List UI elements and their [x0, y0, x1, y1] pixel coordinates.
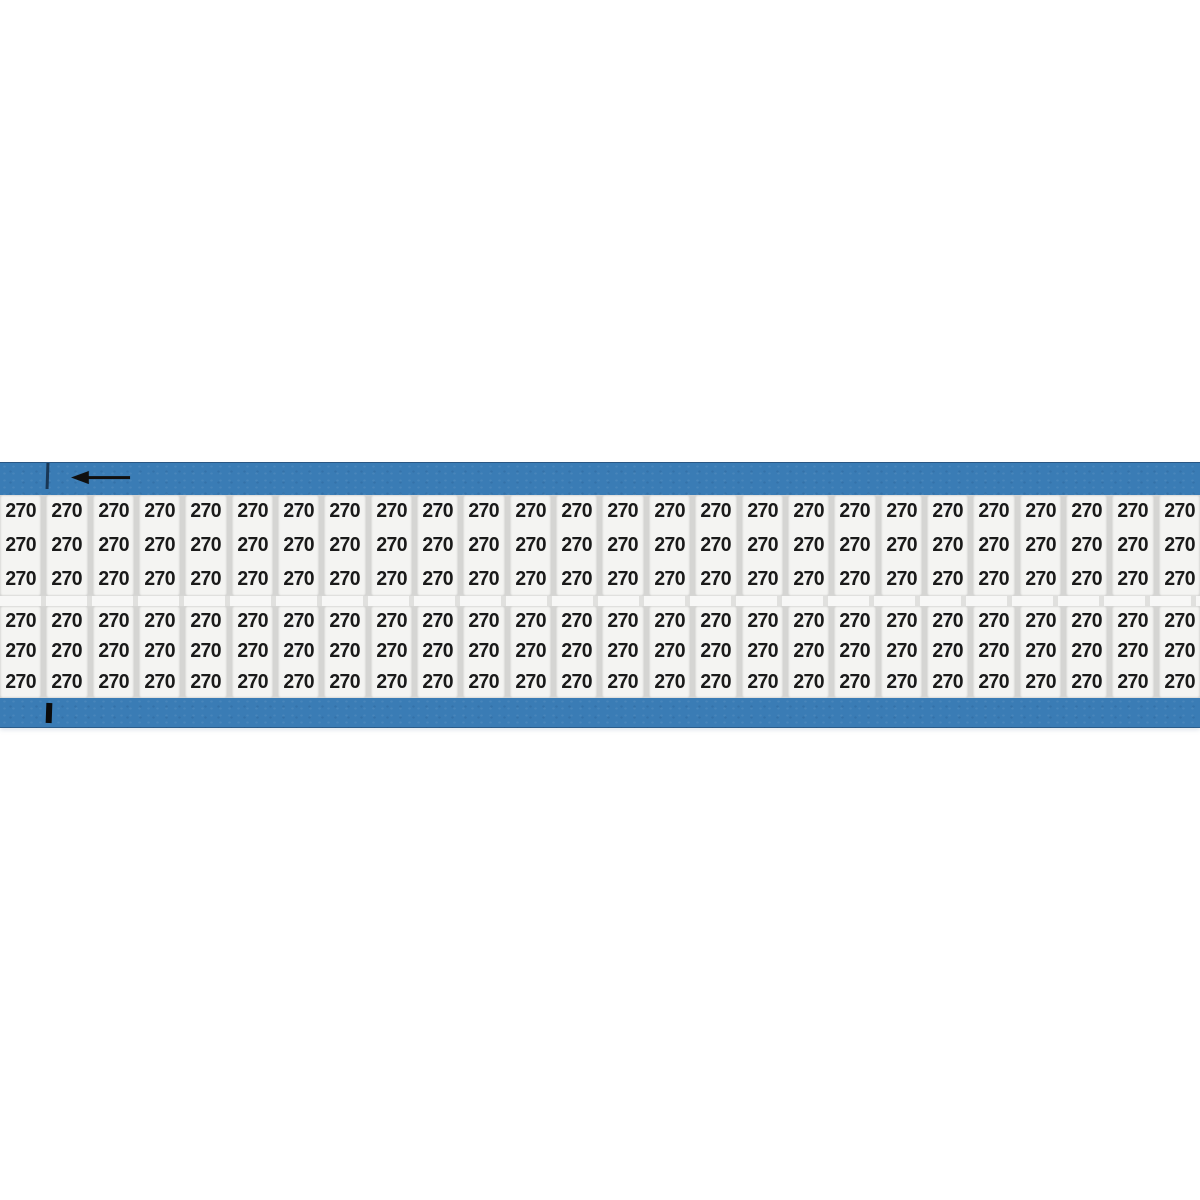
wire-marker-label: 270: [1067, 606, 1107, 637]
wire-marker-label: 270: [186, 495, 226, 529]
wire-marker-label: 270: [557, 606, 597, 637]
wire-marker-label: 270: [1, 606, 41, 637]
wire-marker-label: 270: [1113, 606, 1153, 637]
wire-marker-label: 270: [557, 562, 597, 596]
wire-marker-label: 270: [464, 637, 504, 668]
wire-marker-label: 270: [279, 667, 319, 698]
label-column: 270270270: [1020, 606, 1061, 698]
wire-marker-label: 270: [371, 529, 411, 563]
wire-marker-label: 270: [928, 495, 968, 529]
label-section: 2702702702702702702702702702702702702702…: [0, 495, 1200, 596]
product-image-canvas: 2702702702702702702702702702702702702702…: [0, 0, 1200, 1200]
wire-marker-label: 270: [464, 606, 504, 637]
wire-marker-label: 270: [418, 667, 458, 698]
wire-marker-label: 270: [1020, 562, 1060, 596]
wire-marker-label: 270: [464, 529, 504, 563]
label-column: 270270270: [742, 606, 783, 698]
label-column: 270270270: [417, 606, 458, 698]
wire-marker-label: 270: [603, 667, 643, 698]
wire-marker-label: 270: [881, 637, 921, 668]
wire-marker-label: 270: [47, 529, 87, 563]
wire-marker-label: 270: [974, 606, 1014, 637]
wire-marker-label: 270: [140, 637, 180, 668]
label-column: 270270270: [278, 495, 319, 596]
wire-marker-label: 270: [974, 529, 1014, 563]
label-column: 270270270: [232, 495, 273, 596]
label-column: 270270270: [510, 606, 551, 698]
wire-marker-label: 270: [1, 529, 41, 563]
wire-marker-label: 270: [742, 529, 782, 563]
label-column: 270270270: [602, 606, 643, 698]
wire-marker-label: 270: [881, 529, 921, 563]
label-column: 270270270: [649, 606, 690, 698]
wire-marker-label: 270: [974, 562, 1014, 596]
wire-marker-label: 270: [881, 562, 921, 596]
wire-marker-label: 270: [928, 606, 968, 637]
wire-marker-label: 270: [186, 667, 226, 698]
wire-marker-label: 270: [788, 637, 828, 668]
wire-marker-label: 270: [649, 667, 689, 698]
wire-marker-label: 270: [928, 637, 968, 668]
wire-marker-label: 270: [742, 606, 782, 637]
label-section: 2702702702702702702702702702702702702702…: [0, 606, 1200, 698]
wire-marker-label: 270: [47, 495, 87, 529]
label-column: 270270270: [1066, 495, 1107, 596]
wire-marker-label: 270: [742, 667, 782, 698]
wire-marker-label: 270: [93, 637, 133, 668]
label-column: 270270270: [185, 606, 226, 698]
wire-marker-label: 270: [603, 495, 643, 529]
wire-marker-label: 270: [974, 637, 1014, 668]
wire-marker-label: 270: [1020, 606, 1060, 637]
wire-marker-label: 270: [557, 637, 597, 668]
wire-marker-label: 270: [1113, 529, 1153, 563]
wire-marker-label: 270: [418, 529, 458, 563]
wire-marker-label: 270: [325, 606, 365, 637]
wire-marker-label: 270: [649, 529, 689, 563]
wire-marker-label: 270: [1020, 637, 1060, 668]
wire-marker-label: 270: [788, 529, 828, 563]
wire-marker-label: 270: [835, 529, 875, 563]
wire-marker-label: 270: [510, 495, 550, 529]
wire-marker-label: 270: [1113, 667, 1153, 698]
wire-marker-label: 270: [93, 606, 133, 637]
wire-marker-label: 270: [140, 606, 180, 637]
wire-marker-label: 270: [928, 529, 968, 563]
wire-marker-label: 270: [510, 606, 550, 637]
wire-marker-label: 270: [325, 495, 365, 529]
wire-marker-label: 270: [649, 606, 689, 637]
label-column: 270270270: [742, 495, 783, 596]
wire-marker-label: 270: [557, 529, 597, 563]
wire-marker-label: 270: [788, 562, 828, 596]
wire-marker-label: 270: [140, 667, 180, 698]
wire-marker-label: 270: [279, 606, 319, 637]
wire-marker-label: 270: [696, 667, 736, 698]
wire-marker-label: 270: [510, 562, 550, 596]
wire-marker-label: 270: [742, 562, 782, 596]
label-column: 270270270: [1159, 606, 1200, 698]
label-column: 270270270: [417, 495, 458, 596]
wire-marker-label: 270: [418, 606, 458, 637]
label-column: 270270270: [139, 606, 180, 698]
label-column: 270270270: [93, 606, 134, 698]
wire-marker-label: 270: [93, 495, 133, 529]
wire-marker-label: 270: [279, 637, 319, 668]
label-column: 270270270: [834, 606, 875, 698]
wire-marker-label: 270: [186, 637, 226, 668]
label-column: 270270270: [46, 495, 87, 596]
wire-marker-label: 270: [835, 495, 875, 529]
wire-marker-label: 270: [510, 637, 550, 668]
wire-marker-label: 270: [603, 529, 643, 563]
wire-marker-label: 270: [649, 562, 689, 596]
wire-marker-label: 270: [1159, 637, 1199, 668]
wire-marker-label: 270: [232, 495, 272, 529]
label-column: 270270270: [556, 606, 597, 698]
wire-marker-label: 270: [140, 529, 180, 563]
wire-marker-label: 270: [696, 562, 736, 596]
wire-marker-label: 270: [835, 637, 875, 668]
wire-marker-label: 270: [418, 637, 458, 668]
wire-marker-label: 270: [371, 562, 411, 596]
wire-marker-label: 270: [47, 637, 87, 668]
label-column: 270270270: [695, 495, 736, 596]
wire-marker-label: 270: [418, 562, 458, 596]
label-column: 270270270: [788, 606, 829, 698]
label-column: 270270270: [0, 495, 41, 596]
wire-marker-label: 270: [1159, 495, 1199, 529]
wire-marker-label: 270: [1159, 562, 1199, 596]
wire-marker-label: 270: [510, 529, 550, 563]
wire-marker-label: 270: [371, 495, 411, 529]
label-column: 270270270: [927, 495, 968, 596]
wire-marker-label: 270: [742, 637, 782, 668]
wire-marker-label: 270: [47, 562, 87, 596]
wire-marker-label: 270: [1067, 529, 1107, 563]
label-column: 270270270: [185, 495, 226, 596]
wire-marker-label: 270: [232, 606, 272, 637]
wire-marker-label: 270: [1, 637, 41, 668]
wire-marker-label: 270: [1067, 637, 1107, 668]
label-column: 270270270: [1112, 495, 1153, 596]
label-column: 270270270: [232, 606, 273, 698]
label-column: 270270270: [463, 495, 504, 596]
wire-marker-label: 270: [1067, 667, 1107, 698]
wire-marker-label: 270: [1067, 562, 1107, 596]
wire-marker-label: 270: [279, 529, 319, 563]
wire-marker-label: 270: [1159, 667, 1199, 698]
wire-marker-label: 270: [93, 529, 133, 563]
wire-marker-label: 270: [464, 667, 504, 698]
wire-marker-label: 270: [881, 606, 921, 637]
card-top-band: [0, 462, 1200, 495]
label-column: 270270270: [278, 606, 319, 698]
wire-marker-label: 270: [974, 667, 1014, 698]
label-column: 270270270: [602, 495, 643, 596]
wire-marker-label: 270: [325, 637, 365, 668]
label-column: 270270270: [1066, 606, 1107, 698]
label-column: 270270270: [881, 495, 922, 596]
wire-marker-label: 270: [1113, 562, 1153, 596]
wire-marker-label: 270: [1020, 495, 1060, 529]
wire-marker-label: 270: [603, 562, 643, 596]
wire-marker-label: 270: [279, 495, 319, 529]
wire-marker-label: 270: [371, 606, 411, 637]
wire-marker-label: 270: [140, 495, 180, 529]
label-column: 270270270: [834, 495, 875, 596]
wire-marker-label: 270: [1, 562, 41, 596]
label-column: 270270270: [973, 495, 1014, 596]
wire-marker-label: 270: [186, 529, 226, 563]
label-column: 270270270: [556, 495, 597, 596]
wire-marker-label: 270: [649, 495, 689, 529]
wire-marker-label: 270: [1, 667, 41, 698]
label-column: 270270270: [371, 606, 412, 698]
wire-marker-label: 270: [557, 667, 597, 698]
wire-marker-label: 270: [232, 637, 272, 668]
wire-marker-label: 270: [464, 562, 504, 596]
wire-marker-label: 270: [649, 637, 689, 668]
wire-marker-label: 270: [1, 495, 41, 529]
wire-marker-label: 270: [140, 562, 180, 596]
label-column: 270270270: [139, 495, 180, 596]
wire-marker-label: 270: [464, 495, 504, 529]
wire-marker-label: 270: [788, 606, 828, 637]
wire-marker-label: 270: [835, 606, 875, 637]
wire-marker-label: 270: [928, 562, 968, 596]
wire-marker-label: 270: [835, 667, 875, 698]
wire-marker-label: 270: [279, 562, 319, 596]
wire-marker-label: 270: [371, 637, 411, 668]
wire-marker-label: 270: [1020, 529, 1060, 563]
wire-marker-label: 270: [1113, 495, 1153, 529]
card-bottom-band: [0, 698, 1200, 728]
wire-marker-label: 270: [325, 562, 365, 596]
wire-marker-label: 270: [1113, 637, 1153, 668]
wire-marker-label: 270: [93, 667, 133, 698]
wire-marker-label: 270: [186, 606, 226, 637]
wire-marker-label: 270: [232, 529, 272, 563]
wire-marker-label: 270: [47, 667, 87, 698]
wire-marker-label: 270: [371, 667, 411, 698]
wire-marker-label: 270: [881, 667, 921, 698]
wire-marker-label: 270: [1020, 667, 1060, 698]
label-column: 270270270: [1159, 495, 1200, 596]
wire-marker-label: 270: [788, 667, 828, 698]
label-column: 270270270: [927, 606, 968, 698]
label-column: 270270270: [695, 606, 736, 698]
label-column: 270270270: [510, 495, 551, 596]
wire-marker-label: 270: [788, 495, 828, 529]
wire-marker-card: 2702702702702702702702702702702702702702…: [0, 462, 1200, 727]
wire-marker-label: 270: [835, 562, 875, 596]
wire-marker-label: 270: [881, 495, 921, 529]
wire-marker-label: 270: [603, 606, 643, 637]
wire-marker-label: 270: [974, 495, 1014, 529]
label-column: 270270270: [649, 495, 690, 596]
wire-marker-label: 270: [1159, 606, 1199, 637]
section-divider: [0, 596, 1200, 606]
wire-marker-label: 270: [47, 606, 87, 637]
wire-marker-label: 270: [93, 562, 133, 596]
wire-marker-label: 270: [928, 667, 968, 698]
wire-marker-label: 270: [742, 495, 782, 529]
wire-marker-label: 270: [696, 529, 736, 563]
label-column: 270270270: [371, 495, 412, 596]
wire-marker-label: 270: [325, 529, 365, 563]
label-column: 270270270: [463, 606, 504, 698]
wire-marker-label: 270: [696, 637, 736, 668]
label-column: 270270270: [324, 606, 365, 698]
label-grid-area: 2702702702702702702702702702702702702702…: [0, 495, 1200, 698]
wire-marker-label: 270: [557, 495, 597, 529]
wire-marker-label: 270: [232, 562, 272, 596]
wire-marker-label: 270: [1067, 495, 1107, 529]
label-column: 270270270: [0, 606, 41, 698]
label-column: 270270270: [93, 495, 134, 596]
label-column: 270270270: [788, 495, 829, 596]
wire-marker-label: 270: [232, 667, 272, 698]
label-column: 270270270: [881, 606, 922, 698]
wire-marker-label: 270: [418, 495, 458, 529]
wire-marker-label: 270: [186, 562, 226, 596]
label-column: 270270270: [1020, 495, 1061, 596]
label-column: 270270270: [1112, 606, 1153, 698]
wire-marker-label: 270: [325, 667, 365, 698]
wire-marker-label: 270: [510, 667, 550, 698]
label-column: 270270270: [324, 495, 365, 596]
registration-tick-bottom: [46, 703, 53, 723]
wire-marker-label: 270: [696, 495, 736, 529]
left-arrow-icon: [71, 469, 131, 486]
wire-marker-label: 270: [603, 637, 643, 668]
wire-marker-label: 270: [696, 606, 736, 637]
label-column: 270270270: [46, 606, 87, 698]
registration-tick-top: [46, 463, 50, 489]
wire-marker-label: 270: [1159, 529, 1199, 563]
label-column: 270270270: [973, 606, 1014, 698]
